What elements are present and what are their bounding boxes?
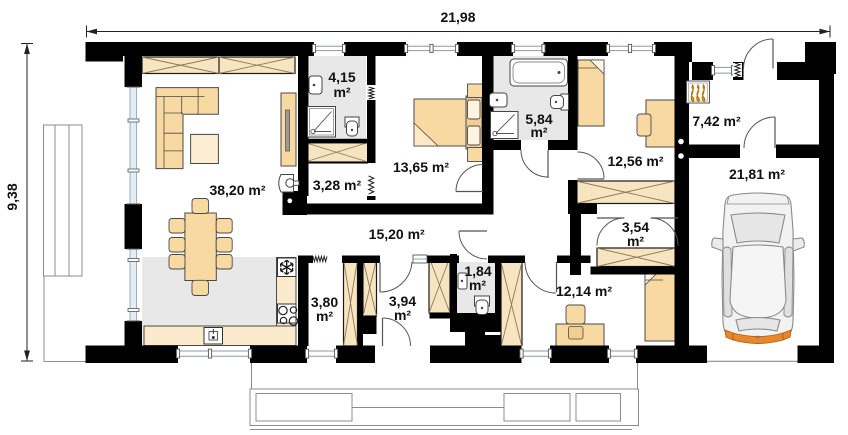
svg-text:7,42 m²: 7,42 m² [692,113,741,129]
svg-text:21,81 m²: 21,81 m² [729,166,785,182]
svg-text:38,20 m²: 38,20 m² [209,182,265,198]
svg-text:12,56 m²: 12,56 m² [607,153,663,169]
svg-text:3,28 m²: 3,28 m² [313,177,362,193]
svg-text:m²: m² [627,233,644,249]
svg-text:15,20 m²: 15,20 m² [369,226,425,242]
svg-text:m²: m² [530,124,547,140]
svg-text:12,14 m²: 12,14 m² [556,283,612,299]
svg-text:m²: m² [394,307,411,323]
svg-text:4,15: 4,15 [328,69,355,85]
svg-text:m²: m² [316,308,333,324]
svg-text:21,98: 21,98 [440,9,475,25]
svg-text:m²: m² [469,277,486,293]
svg-text:9,38: 9,38 [4,183,20,210]
svg-text:13,65 m²: 13,65 m² [393,159,449,175]
svg-text:m²: m² [333,84,350,100]
